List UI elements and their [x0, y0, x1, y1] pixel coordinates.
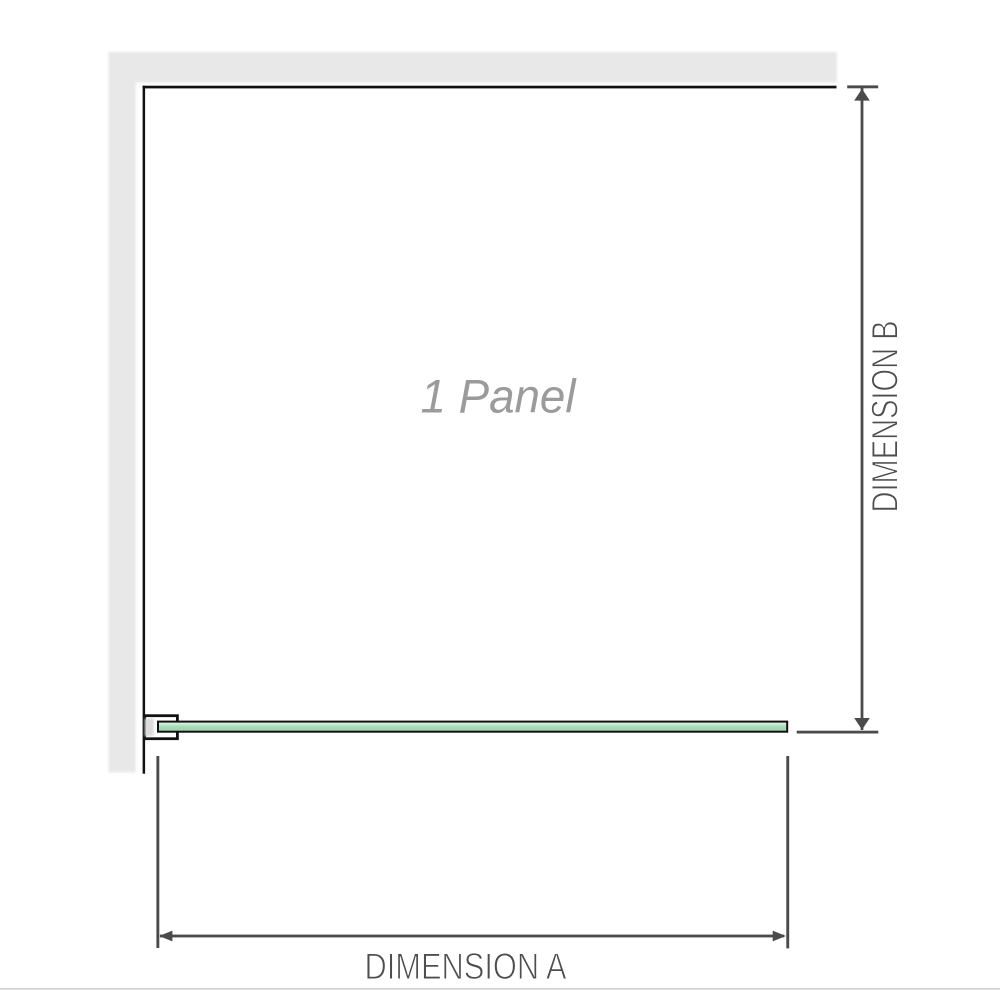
svg-text:DIMENSION A: DIMENSION A — [365, 945, 567, 987]
svg-text:DIMENSION B: DIMENSION B — [864, 321, 906, 513]
svg-text:1 Panel: 1 Panel — [421, 369, 578, 422]
